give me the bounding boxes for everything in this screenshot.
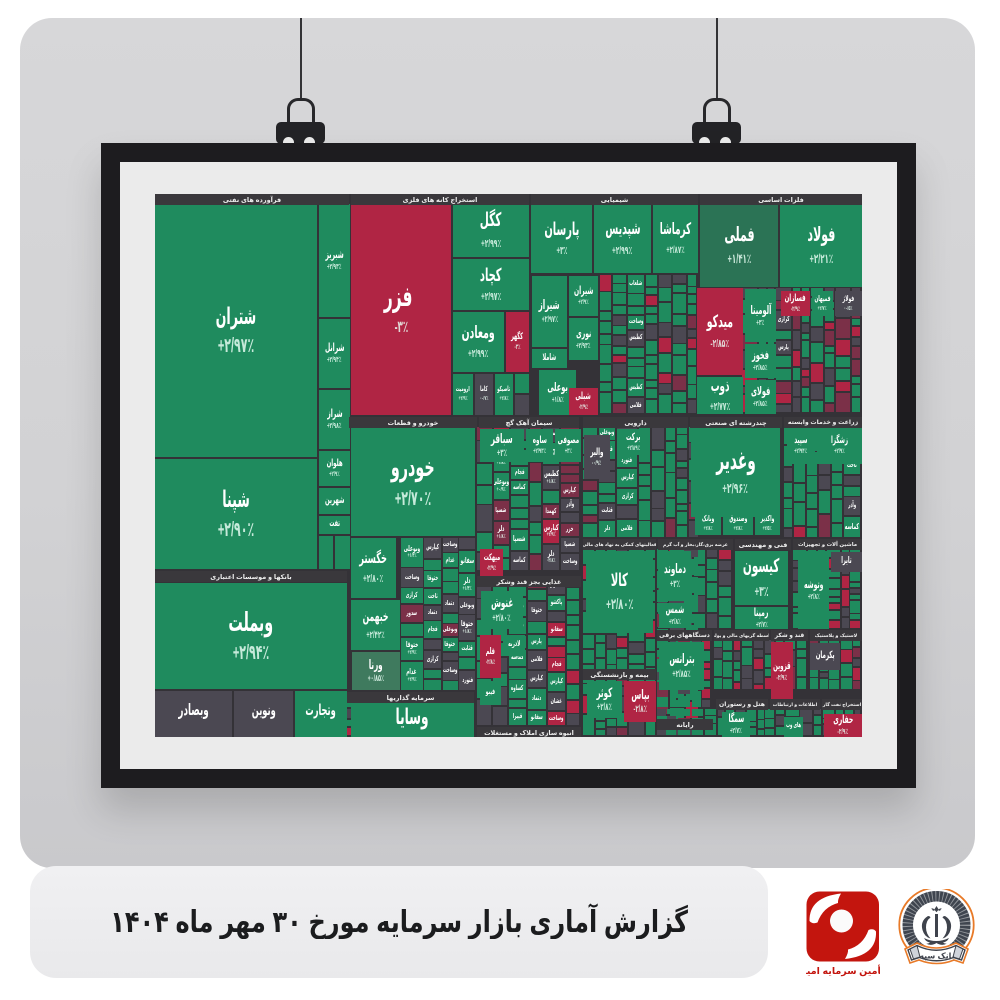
svg-text:تأمین سرمایه امید: تأمین سرمایه امید <box>806 964 880 977</box>
svg-text:بانک سپه: بانک سپه <box>919 952 954 961</box>
